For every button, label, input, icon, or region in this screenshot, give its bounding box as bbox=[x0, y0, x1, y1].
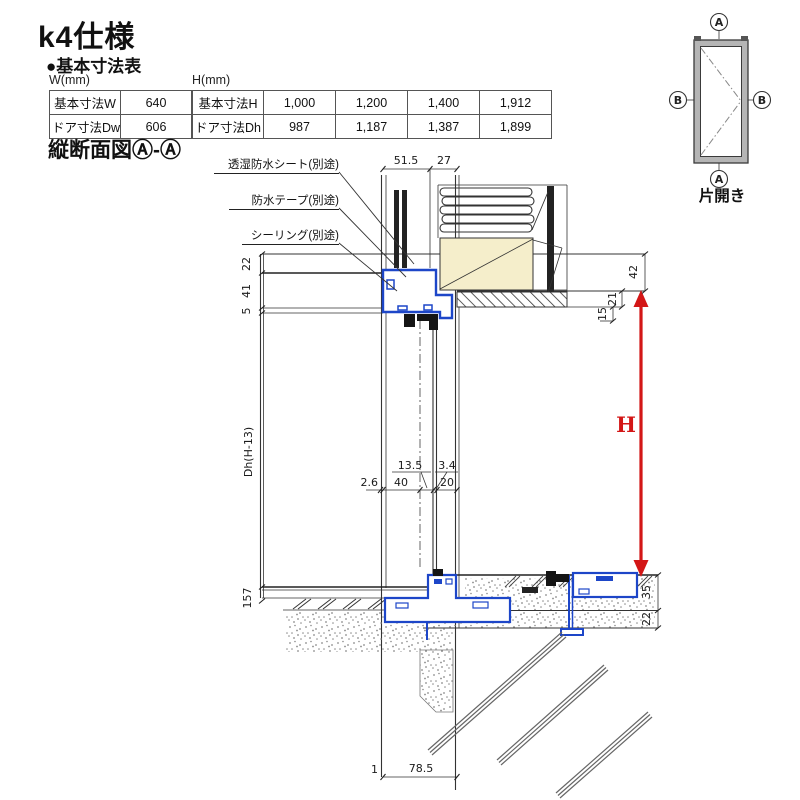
dim-mid-13-5: 13.5 bbox=[398, 459, 423, 472]
callout-waterproof-tape: 防水テープ(別途) bbox=[229, 192, 339, 210]
dim-right-15: 15 bbox=[596, 307, 609, 321]
dim-bottom-1: 1 bbox=[371, 763, 378, 776]
dim-mid-2-6: 2.6 bbox=[361, 476, 379, 489]
dim-right-21: 21 bbox=[606, 292, 619, 306]
left-dimensions: 22 41 5 Dh(H-13) bbox=[240, 252, 265, 478]
svg-text:B: B bbox=[674, 94, 682, 107]
vertical-section-drawing: H 51.5 27 22 41 5 Dh(H-13) bbox=[240, 154, 661, 798]
table-row: ドア寸法Dh 987 1,187 1,387 1,899 bbox=[193, 115, 552, 139]
h-row1-label: 基本寸法H bbox=[193, 91, 264, 115]
door-bottom-seal bbox=[546, 571, 556, 586]
dim-mid-40: 40 bbox=[394, 476, 408, 489]
callout-sealing: シーリング(別途) bbox=[242, 227, 339, 245]
svg-text:B: B bbox=[758, 94, 766, 107]
door-bottom-seal bbox=[433, 569, 443, 576]
ground-break-marks bbox=[428, 632, 652, 798]
mid-dimensions: 2.6 40 13.5 3.4 20 bbox=[361, 459, 460, 493]
h-row2-value1: 987 bbox=[264, 115, 336, 139]
h-row2-value2: 1,187 bbox=[336, 115, 408, 139]
dim-mid-20: 20 bbox=[440, 476, 454, 489]
w-table-caption: W(mm) bbox=[49, 73, 90, 87]
door-elevation-diagram: A A B B 片開き bbox=[670, 14, 771, 206]
dim-door-height: Dh(H-13) bbox=[242, 427, 255, 477]
bottom-dimension: 1 78.5 bbox=[371, 762, 460, 780]
h-row2-value4: 1,899 bbox=[480, 115, 552, 139]
h-row1-value2: 1,200 bbox=[336, 91, 408, 115]
furring-bar bbox=[394, 190, 399, 268]
svg-text:A: A bbox=[715, 173, 724, 186]
dim-left-41: 41 bbox=[240, 284, 253, 298]
dim-left-5: 5 bbox=[240, 308, 253, 315]
door-panel bbox=[701, 47, 742, 157]
door-type-caption: 片開き bbox=[699, 186, 746, 205]
dim-top-1: 51.5 bbox=[394, 154, 419, 167]
w-dimension-table: 基本寸法W 640 ドア寸法Dw 606 bbox=[49, 90, 192, 139]
dim-left-22: 22 bbox=[240, 257, 253, 271]
dim-floor-left: 157 bbox=[241, 588, 254, 609]
spec-sheet-page: { "title": "k4仕様", "subtitle": "●基本寸法表",… bbox=[0, 0, 800, 800]
table-row: 基本寸法H 1,000 1,200 1,400 1,912 bbox=[193, 91, 552, 115]
dim-bottom-78-5: 78.5 bbox=[409, 762, 434, 775]
svg-text:A: A bbox=[715, 16, 724, 29]
dim-br-35: 35 bbox=[640, 585, 653, 599]
section-marker-a-top: A bbox=[711, 14, 728, 40]
exterior-finish-hatch bbox=[457, 292, 567, 307]
door-bottom-seal bbox=[556, 574, 569, 582]
dim-top-2: 27 bbox=[437, 154, 451, 167]
section-marker-a-bottom: A bbox=[711, 163, 728, 188]
insulation-coil bbox=[440, 188, 548, 232]
h-dimension-arrow: H bbox=[616, 290, 648, 577]
section-marker-b-left: B bbox=[670, 92, 695, 109]
h-dimension-table: 基本寸法H 1,000 1,200 1,400 1,912 ドア寸法Dh 987… bbox=[192, 90, 552, 139]
dim-br-22: 22 bbox=[640, 612, 653, 626]
table-row: 基本寸法W 640 bbox=[50, 91, 192, 115]
h-row2-label: ドア寸法Dh bbox=[193, 115, 264, 139]
page-title: k4仕様 bbox=[38, 12, 135, 56]
h-row1-value3: 1,400 bbox=[408, 91, 480, 115]
stud-bar bbox=[547, 186, 554, 306]
w-row1-value: 640 bbox=[121, 91, 192, 115]
furring-bar bbox=[402, 190, 407, 268]
dim-mid-3-4: 3.4 bbox=[438, 459, 456, 472]
top-dimension: 51.5 27 bbox=[381, 154, 460, 172]
callout-moisture-sheet: 透湿防水シート(別途) bbox=[214, 156, 339, 174]
dim-right-42: 42 bbox=[627, 265, 640, 279]
door-top-seal bbox=[417, 314, 438, 321]
door-top-seal bbox=[429, 320, 438, 330]
w-row1-label: 基本寸法W bbox=[50, 91, 121, 115]
h-row1-value4: 1,912 bbox=[480, 91, 552, 115]
h-table-caption: H(mm) bbox=[192, 73, 230, 87]
floor-left-dimension: 157 bbox=[241, 585, 265, 609]
door-top-seal bbox=[404, 314, 415, 327]
section-view-title: 縦断面図Ⓐ-Ⓐ bbox=[48, 134, 181, 164]
h-dimension-label: H bbox=[616, 412, 636, 437]
h-row2-value3: 1,387 bbox=[408, 115, 480, 139]
sill-clip bbox=[522, 587, 538, 593]
section-marker-b-right: B bbox=[748, 92, 771, 109]
h-row1-value1: 1,000 bbox=[264, 91, 336, 115]
